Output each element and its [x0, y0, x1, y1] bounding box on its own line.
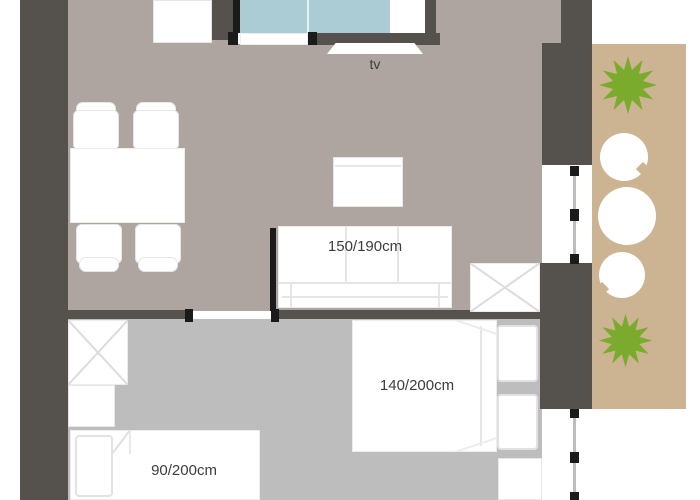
pillow [497, 394, 538, 450]
window-pane-divider [307, 0, 309, 33]
sofa-size-label: 150/190cm [278, 239, 452, 255]
wardrobe-box [68, 320, 128, 385]
double-bed: 140/200cm [352, 320, 497, 452]
storage-box [470, 263, 540, 312]
door-jamb [228, 32, 238, 45]
frame-marker [570, 452, 579, 463]
window-glass [233, 0, 390, 33]
wall-room-divider-left [68, 310, 187, 319]
dining-chair [133, 102, 179, 150]
dining-chair [73, 102, 119, 150]
pillow [75, 435, 113, 497]
wall-left [20, 0, 68, 500]
tv-label: tv [327, 56, 423, 72]
tv-unit [327, 43, 423, 54]
wall-right-lower [540, 263, 592, 409]
plant-icon [597, 54, 659, 116]
coffee-table [333, 157, 403, 207]
sofa: 150/190cm [278, 226, 452, 308]
balcony-table [598, 187, 656, 245]
sliding-door-leaf [240, 33, 308, 45]
plant-icon [597, 312, 654, 369]
door-jamb [271, 309, 279, 322]
living-room-floor [436, 0, 561, 44]
wall-top-right-pillar [425, 0, 436, 35]
dining-chair [135, 222, 181, 272]
wall-right-top [561, 0, 592, 44]
dining-table [70, 148, 185, 223]
window-mullion [233, 0, 240, 33]
door-jamb [308, 32, 317, 45]
pillow [497, 325, 538, 382]
wall-right-upper [542, 43, 592, 165]
kitchen-counter [153, 0, 212, 43]
frame-marker [570, 409, 579, 418]
wall-stub [270, 228, 276, 311]
floor-plan: tv 150/190cm 90/200cm [0, 0, 700, 500]
cabinet [68, 385, 115, 427]
frame-marker [570, 166, 579, 176]
frame-marker [570, 492, 579, 500]
dining-chair [76, 222, 122, 272]
frame-marker [570, 254, 579, 264]
single-bed-size-label: 90/200cm [124, 463, 244, 479]
double-bed-size-label: 140/200cm [352, 378, 482, 394]
frame-marker [570, 209, 579, 221]
door-jamb [185, 309, 193, 322]
single-bed: 90/200cm [70, 430, 260, 500]
nightstand [498, 458, 542, 500]
